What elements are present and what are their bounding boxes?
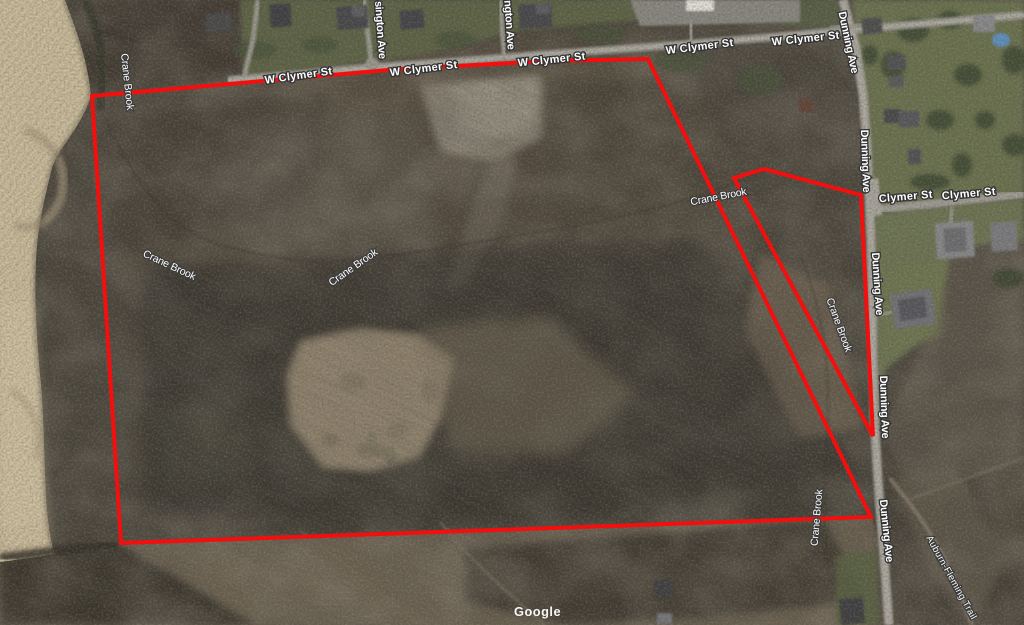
svg-text:Google: Google bbox=[514, 604, 561, 619]
svg-text:Dunning Ave: Dunning Ave bbox=[877, 375, 891, 438]
svg-text:Dunning Ave: Dunning Ave bbox=[858, 129, 872, 192]
